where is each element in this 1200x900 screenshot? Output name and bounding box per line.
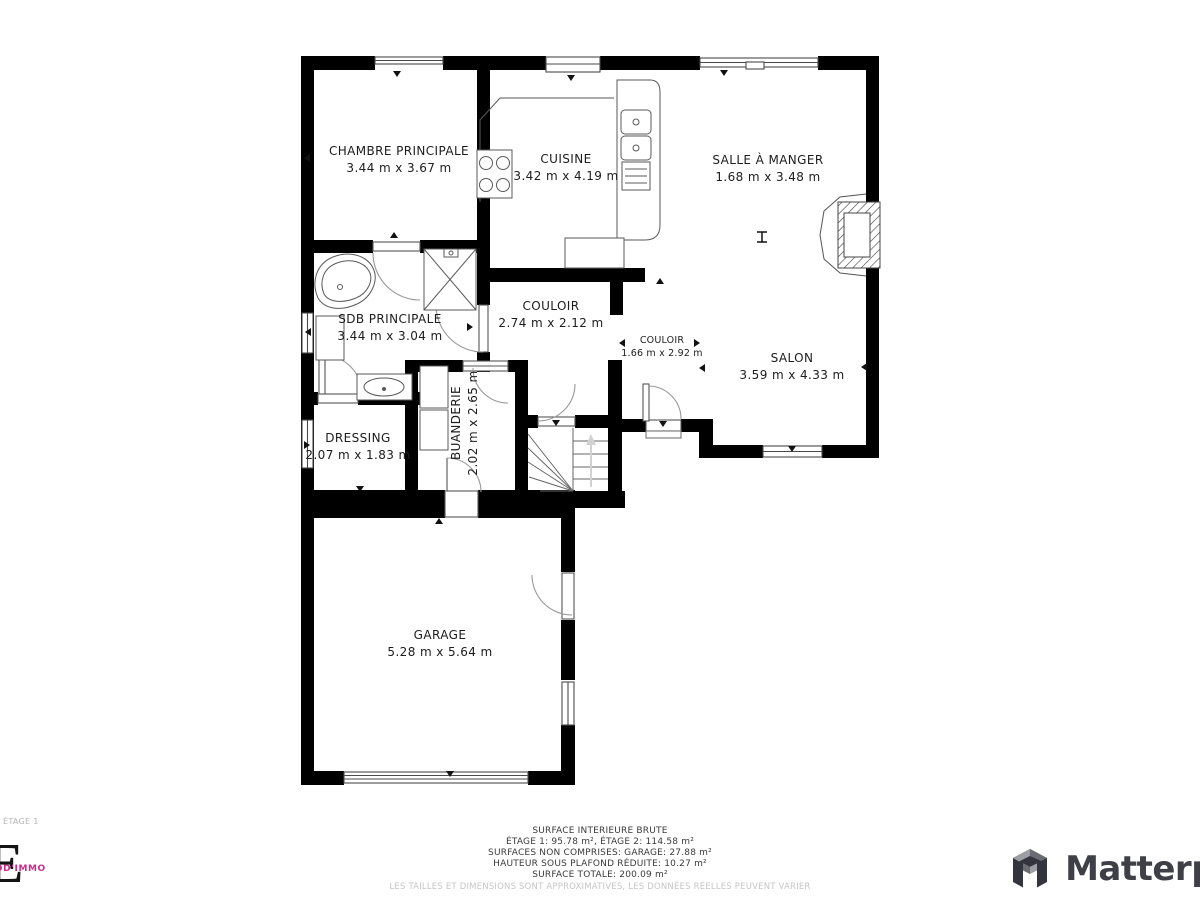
room-dims: 5.28 m x 5.64 m [387,644,492,661]
garage-door [344,772,528,783]
fireplace [820,194,880,276]
room-dims: 2.74 m x 2.12 m [498,315,603,332]
room-dims: 1.68 m x 3.48 m [712,169,823,186]
bathtub-drain [338,285,343,290]
room-name: COULOIR [498,298,603,315]
dimension-marker [757,232,767,242]
window-chambre [375,57,443,64]
matterport-icon [1008,848,1052,892]
summary-etages: ÉTAGE 1: 95.78 m², ÉTAGE 2: 114.58 m² [0,837,1200,848]
agency-logo: E DD'IMMO [0,840,76,900]
floor-label: ÉTAGE 1 [3,817,39,826]
room-dims: 3.44 m x 3.67 m [329,160,469,177]
room-dims: 2.02 m x 2.65 m [465,370,482,475]
room-name: GARAGE [387,627,492,644]
floorplan-page: { "rooms": [ {"name": "CHAMBRE PRINCIPAL… [0,0,1200,900]
kitchen-island [565,238,624,268]
room-label-couloir-1: COULOIR 2.74 m x 2.12 m [498,298,603,332]
room-label-salon: SALON 3.59 m x 4.33 m [739,350,844,384]
door-entrance [643,384,681,438]
room-name: SDB PRINCIPALE [337,311,442,328]
room-name: SALLE À MANGER [712,152,823,169]
room-name: COULOIR [621,334,703,347]
summary-title: SURFACE INTERIEURE BRUTE [0,826,1200,837]
shower [424,249,476,310]
door-chambre-sdb [373,242,420,300]
door-garage-side [532,573,574,619]
room-label-sdb-principale: SDB PRINCIPALE 3.44 m x 3.04 m [337,311,442,345]
room-name: BUANDERIE [448,370,465,475]
room-label-dressing: DRESSING 2.07 m x 1.83 m [305,430,410,464]
room-label-chambre-principale: CHAMBRE PRINCIPALE 3.44 m x 3.67 m [329,143,469,177]
door-couloir-sdb [436,305,488,352]
room-name: SALON [739,350,844,367]
room-label-cuisine: CUISINE 3.42 m x 4.19 m [513,151,618,185]
door-sdb-dressing [318,354,361,403]
window-cuisine [546,57,600,72]
room-name: DRESSING [305,430,410,447]
matterport-wordmark: Matterport [1065,849,1200,889]
room-name: CHAMBRE PRINCIPALE [329,143,469,160]
room-dims: 1.66 m x 2.92 m [621,347,703,360]
matterport-logo: Matterport [1008,848,1200,894]
vanity-sink [357,374,412,400]
room-label-salle-a-manger: SALLE À MANGER 1.68 m x 3.48 m [712,152,823,186]
room-dims: 3.42 m x 4.19 m [513,168,618,185]
window-garage [562,682,574,725]
door-stairs [538,384,575,426]
room-label-couloir-2: COULOIR 1.66 m x 2.92 m [621,334,703,360]
room-label-garage: GARAGE 5.28 m x 5.64 m [387,627,492,661]
room-dims: 3.59 m x 4.33 m [739,367,844,384]
window-salle-a-manger [700,58,818,69]
floorplan-drawing [0,0,1200,900]
room-dims: 3.44 m x 3.04 m [337,328,442,345]
room-label-buanderie: BUANDERIE 2.02 m x 2.65 m [448,370,482,475]
kitchen-sink [621,110,651,190]
agency-logo-text: DD'IMMO [0,864,46,874]
stairs [528,428,608,491]
stove [477,150,512,198]
room-dims: 2.07 m x 1.83 m [305,447,410,464]
laundry-fixtures [420,366,448,450]
room-name: CUISINE [513,151,618,168]
